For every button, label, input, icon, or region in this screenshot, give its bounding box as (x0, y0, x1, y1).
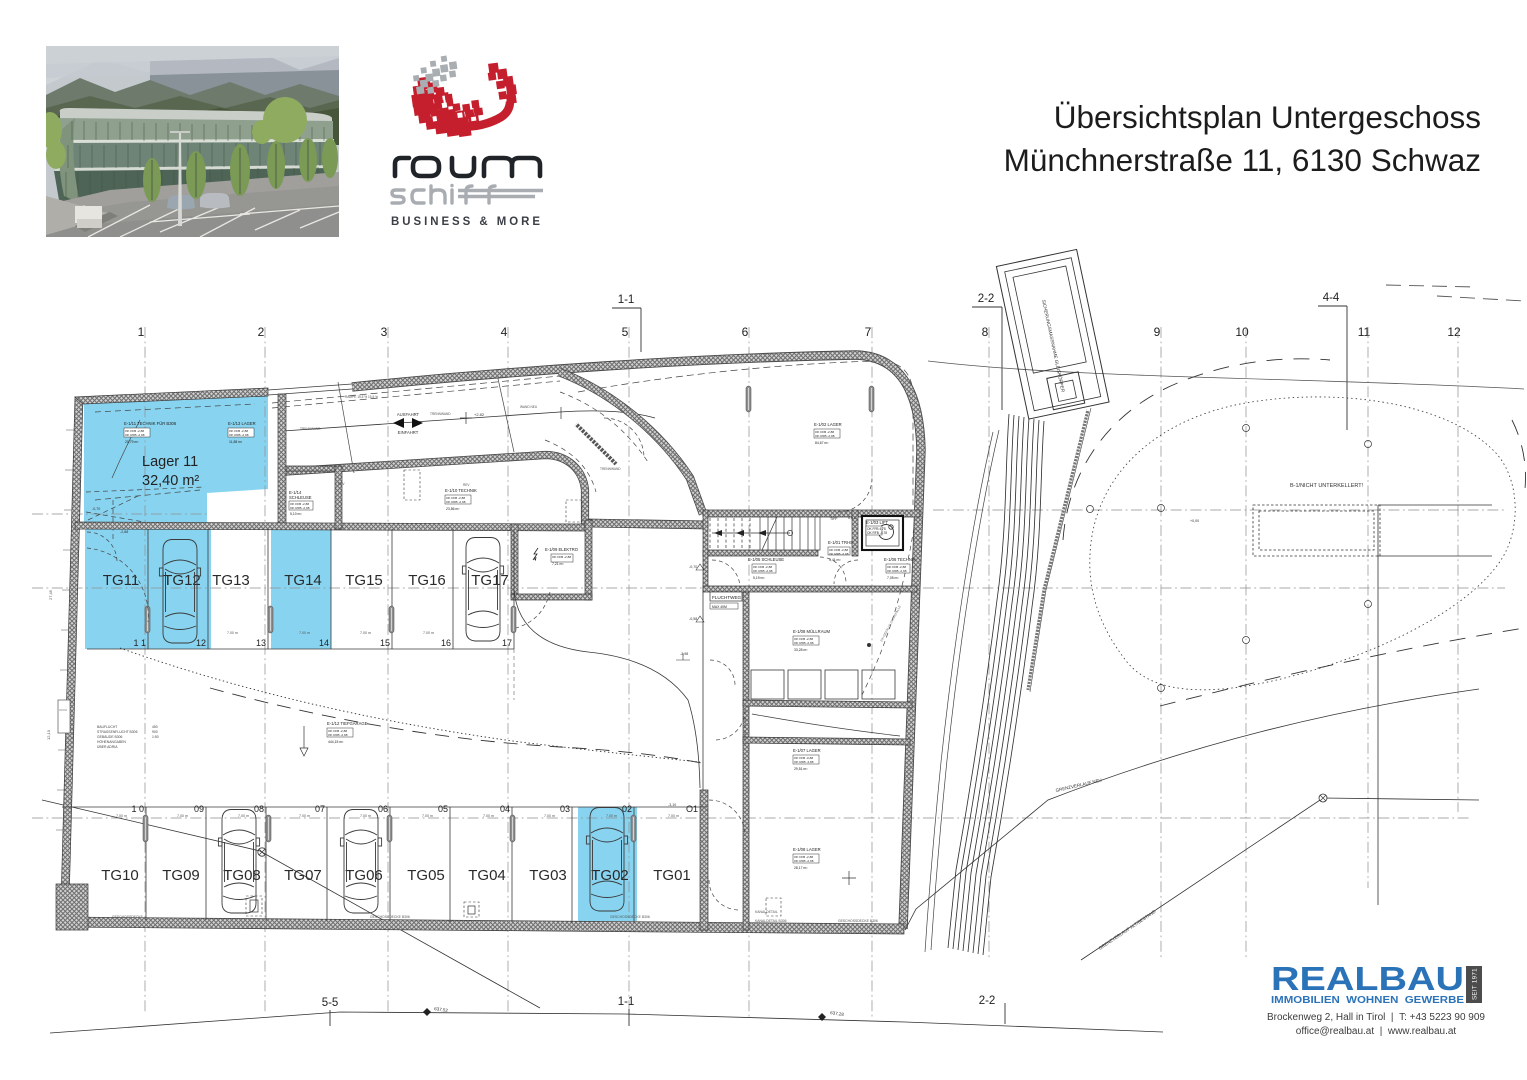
svg-text:E-1/07 LAGER: E-1/07 LAGER (793, 748, 821, 753)
svg-text:5: 5 (622, 325, 629, 339)
svg-text:7.00 m: 7.00 m (544, 814, 555, 818)
svg-text:4-4: 4-4 (1323, 292, 1340, 304)
svg-text:7.00 m: 7.00 m (177, 814, 188, 818)
svg-text:KANALDETAIL: KANALDETAIL (755, 910, 778, 914)
svg-text:7.00 m: 7.00 m (422, 814, 433, 818)
svg-text:2-2: 2-2 (978, 293, 995, 305)
svg-text:7.00 m: 7.00 m (360, 631, 371, 635)
svg-text:TG07: TG07 (284, 867, 322, 884)
svg-text:OK RFB -4,78: OK RFB -4,78 (867, 531, 887, 535)
svg-text:7.00 m: 7.00 m (238, 814, 249, 818)
svg-text:10: 10 (1235, 325, 1249, 339)
svg-text:0,0 G: 0,0 G (848, 516, 857, 520)
svg-text:7: 7 (865, 325, 872, 339)
svg-text:TRENNWAND: TRENNWAND (300, 427, 321, 431)
svg-text:1:50: 1:50 (152, 735, 159, 739)
svg-text:OK RFB -2,98: OK RFB -2,98 (887, 569, 907, 573)
svg-text:IMMOBILIEN WOHNEN GEWERBE: IMMOBILIEN WOHNEN GEWERBE (1271, 994, 1464, 1006)
svg-text:29,51 m²: 29,51 m² (794, 767, 808, 771)
svg-text:04: 04 (500, 804, 510, 814)
svg-text:TG01: TG01 (653, 867, 691, 884)
svg-text:TG14: TG14 (284, 572, 322, 589)
svg-text:900: 900 (152, 730, 158, 734)
svg-text:TG13: TG13 (212, 572, 250, 589)
svg-text:GESCHOSSDECKE B306: GESCHOSSDECKE B306 (370, 915, 410, 919)
svg-text:OK RFB -4,88: OK RFB -4,88 (794, 760, 814, 764)
svg-text:5,41 m²: 5,41 m² (829, 558, 841, 562)
svg-text:+2.82: +2.82 (474, 412, 485, 417)
svg-text:1 1: 1 1 (133, 638, 146, 648)
svg-text:7.00 m: 7.00 m (116, 814, 127, 818)
svg-text:BUSINESS & MORE: BUSINESS & MORE (391, 216, 543, 228)
svg-text:Münchnerstraße 11, 6130 Schwaz: Münchnerstraße 11, 6130 Schwaz (1004, 142, 1481, 178)
svg-text:TG05: TG05 (407, 867, 445, 884)
svg-text:16: 16 (441, 638, 451, 648)
svg-text:Brockenweg 2, Hall in Tirol |: Brockenweg 2, Hall in Tirol | T: +43 522… (1267, 1012, 1485, 1023)
svg-text:7.00 m: 7.00 m (227, 631, 238, 635)
svg-text:5-5: 5-5 (322, 997, 339, 1009)
svg-text:450: 450 (152, 725, 158, 729)
svg-text:KANALDETAIL B306: KANALDETAIL B306 (755, 919, 787, 923)
svg-text:E-1/12 TIEFGARAGE: E-1/12 TIEFGARAGE (327, 721, 368, 726)
svg-text:E-1/09 ELEKTRO: E-1/09 ELEKTRO (545, 547, 579, 552)
svg-text:5,19 m²: 5,19 m² (753, 576, 765, 580)
svg-text:OK RFB -2,98: OK RFB -2,98 (753, 569, 773, 573)
svg-text:STRASSENFLUCHT B306: STRASSENFLUCHT B306 (97, 730, 138, 734)
svg-text:17: 17 (502, 638, 512, 648)
svg-text:5,10 m²: 5,10 m² (290, 512, 302, 516)
svg-text:03: 03 (560, 804, 570, 814)
svg-text:1-1: 1-1 (618, 996, 635, 1008)
svg-text:27,45: 27,45 (48, 589, 53, 600)
svg-text:444,15 m²: 444,15 m² (328, 740, 344, 744)
svg-text:8: 8 (982, 325, 989, 339)
svg-text:9: 9 (1154, 325, 1161, 339)
svg-text:B-1/NICHT UNTERKELLERT!: B-1/NICHT UNTERKELLERT! (1290, 483, 1364, 489)
svg-text:E-1/02 LAGER: E-1/02 LAGER (814, 422, 842, 427)
svg-text:12: 12 (1447, 325, 1461, 339)
svg-text:+0,00: +0,00 (1190, 519, 1199, 523)
svg-text:office@realbau.at | www.real: office@realbau.at | www.realbau.at (1296, 1026, 1457, 1037)
svg-text:TG08: TG08 (223, 867, 261, 884)
svg-text:15: 15 (380, 638, 390, 648)
svg-text:O1: O1 (686, 804, 698, 814)
svg-text:TG16: TG16 (408, 572, 446, 589)
svg-text:12,10: 12,10 (46, 729, 51, 740)
svg-text:REV: REV (463, 483, 470, 487)
svg-text:REALBAU: REALBAU (1271, 960, 1464, 997)
svg-text:OK RFB -2,98: OK RFB -2,98 (125, 433, 145, 437)
svg-text:1 0: 1 0 (131, 804, 144, 814)
svg-text:Lager 11: Lager 11 (142, 454, 198, 470)
svg-text:7.00 m: 7.00 m (606, 814, 617, 818)
svg-text:14: 14 (319, 638, 329, 648)
svg-text:FLUCHTWEG: FLUCHTWEG (712, 595, 742, 600)
svg-text:TG10: TG10 (101, 867, 139, 884)
svg-text:TG09: TG09 (162, 867, 200, 884)
svg-text:11: 11 (1358, 325, 1371, 339)
svg-text:TG15: TG15 (345, 572, 383, 589)
svg-text:TG12: TG12 (163, 572, 201, 589)
svg-text:-2,98: -2,98 (680, 652, 688, 656)
svg-text:E-1/08 LAGER: E-1/08 LAGER (793, 847, 821, 852)
svg-text:7.00 m: 7.00 m (299, 814, 310, 818)
svg-text:23,86 m²: 23,86 m² (446, 507, 460, 511)
svg-text:OK RFB -2,98: OK RFB -2,98 (229, 433, 249, 437)
svg-text:3: 3 (381, 325, 388, 339)
svg-text:TG06: TG06 (345, 867, 383, 884)
svg-text:HÖHENANGABEN: HÖHENANGABEN (97, 740, 126, 744)
svg-text:GESCHOSSDECKE B306: GESCHOSSDECKE B306 (610, 915, 650, 919)
svg-text:GESCHOSSDECKE B306: GESCHOSSDECKE B306 (838, 919, 878, 923)
svg-text:-0,58: -0,58 (689, 617, 697, 621)
svg-text:SCHLEUSE: SCHLEUSE (289, 495, 312, 500)
svg-text:E-1/13 LAGER: E-1/13 LAGER (228, 421, 256, 426)
svg-text:-2,88: -2,88 (120, 530, 128, 534)
svg-text:TG17: TG17 (471, 572, 509, 589)
svg-text:Übersichtsplan Untergeschoss: Übersichtsplan Untergeschoss (1054, 99, 1481, 135)
svg-text:MAX 40M: MAX 40M (712, 605, 727, 609)
svg-text:13: 13 (256, 638, 266, 648)
svg-text:11,88 m²: 11,88 m² (229, 440, 243, 444)
svg-text:-0,70: -0,70 (689, 565, 697, 569)
svg-text:TG03: TG03 (529, 867, 567, 884)
svg-text:BAUFLUCHT: BAUFLUCHT (97, 725, 117, 729)
svg-text:28,17 m²: 28,17 m² (794, 866, 808, 870)
svg-text:2: 2 (258, 325, 265, 339)
svg-text:12: 12 (196, 638, 206, 648)
svg-text:32,40 m²: 32,40 m² (142, 473, 199, 489)
svg-text:08: 08 (254, 804, 264, 814)
svg-text:RAMPE 15,5 % 15,5 %: RAMPE 15,5 % 15,5 % (345, 395, 378, 399)
svg-text:OK RFB -2,98: OK RFB -2,98 (328, 733, 348, 737)
svg-text:E-1/03 LIFT: E-1/03 LIFT (866, 520, 889, 525)
svg-text:OK FFB -2,88: OK FFB -2,88 (552, 555, 571, 559)
svg-text:7.00 m: 7.00 m (299, 631, 310, 635)
svg-text:33,28 m²: 33,28 m² (794, 648, 808, 652)
svg-text:GESCHOSSDECKE: GESCHOSSDECKE (112, 915, 144, 919)
svg-text:TRENNWAND: TRENNWAND (600, 467, 621, 471)
svg-text:7.00 m: 7.00 m (483, 814, 494, 818)
svg-text:ÜBER ADRIA: ÜBER ADRIA (97, 745, 118, 749)
svg-text:05: 05 (438, 804, 448, 814)
svg-text:TG04: TG04 (468, 867, 506, 884)
svg-text:EINFAHRT: EINFAHRT (398, 430, 419, 435)
svg-text:TG11: TG11 (103, 572, 139, 589)
svg-text:REV: REV (338, 482, 345, 486)
svg-text:OK RFB -2,98: OK RFB -2,98 (290, 506, 310, 510)
svg-text:OK RFB -2,98: OK RFB -2,98 (794, 859, 814, 863)
svg-text:OK RFB -2,98: OK RFB -2,98 (815, 434, 835, 438)
svg-text:E-1/11 TECHNIK FÜR B306: E-1/11 TECHNIK FÜR B306 (124, 421, 177, 426)
svg-text:7.00 m: 7.00 m (360, 814, 371, 818)
svg-text:WAND NEU: WAND NEU (520, 405, 538, 409)
svg-text:SEIT 1971: SEIT 1971 (1472, 968, 1479, 1000)
svg-text:1: 1 (138, 325, 145, 339)
svg-text:OK RFB -2,98: OK RFB -2,98 (446, 500, 466, 504)
svg-text:E-1/01 TRHS: E-1/01 TRHS (828, 540, 853, 545)
svg-text:TRENNWAND: TRENNWAND (430, 412, 451, 416)
svg-text:E-1/05 SCHLEUSE: E-1/05 SCHLEUSE (748, 557, 784, 562)
svg-text:GEBÄUDE B306: GEBÄUDE B306 (97, 735, 123, 739)
svg-text:-0,70: -0,70 (92, 507, 100, 511)
svg-text:06: 06 (378, 804, 388, 814)
svg-text:1-1: 1-1 (618, 294, 635, 306)
svg-text:E-1/08 MÜLLRAUM: E-1/08 MÜLLRAUM (793, 629, 831, 634)
svg-text:6: 6 (742, 325, 749, 339)
svg-text:E-1/10 TECHNIK: E-1/10 TECHNIK (445, 488, 477, 493)
svg-text:OK RFB -2,98: OK RFB -2,98 (829, 552, 849, 556)
svg-text:07: 07 (315, 804, 325, 814)
svg-text:E-1/06 TECHNIK: E-1/06 TECHNIK (884, 557, 916, 562)
svg-text:TIFF: TIFF (830, 517, 838, 521)
svg-text:7.00 m: 7.00 m (423, 631, 434, 635)
svg-text:09: 09 (194, 804, 204, 814)
svg-text:20,79 m²: 20,79 m² (125, 440, 139, 444)
svg-text:7.00 m: 7.00 m (668, 814, 679, 818)
svg-text:84,67 m²: 84,67 m² (815, 441, 829, 445)
svg-text:7,05 m²: 7,05 m² (887, 576, 899, 580)
svg-text:-3,10: -3,10 (668, 803, 676, 807)
svg-text:AUSFAHRT: AUSFAHRT (397, 412, 420, 417)
svg-text:OK RFB -2,98: OK RFB -2,98 (794, 641, 814, 645)
svg-text:7,21 m²: 7,21 m² (552, 562, 564, 566)
svg-text:4: 4 (501, 325, 508, 339)
svg-text:2-2: 2-2 (979, 995, 996, 1007)
